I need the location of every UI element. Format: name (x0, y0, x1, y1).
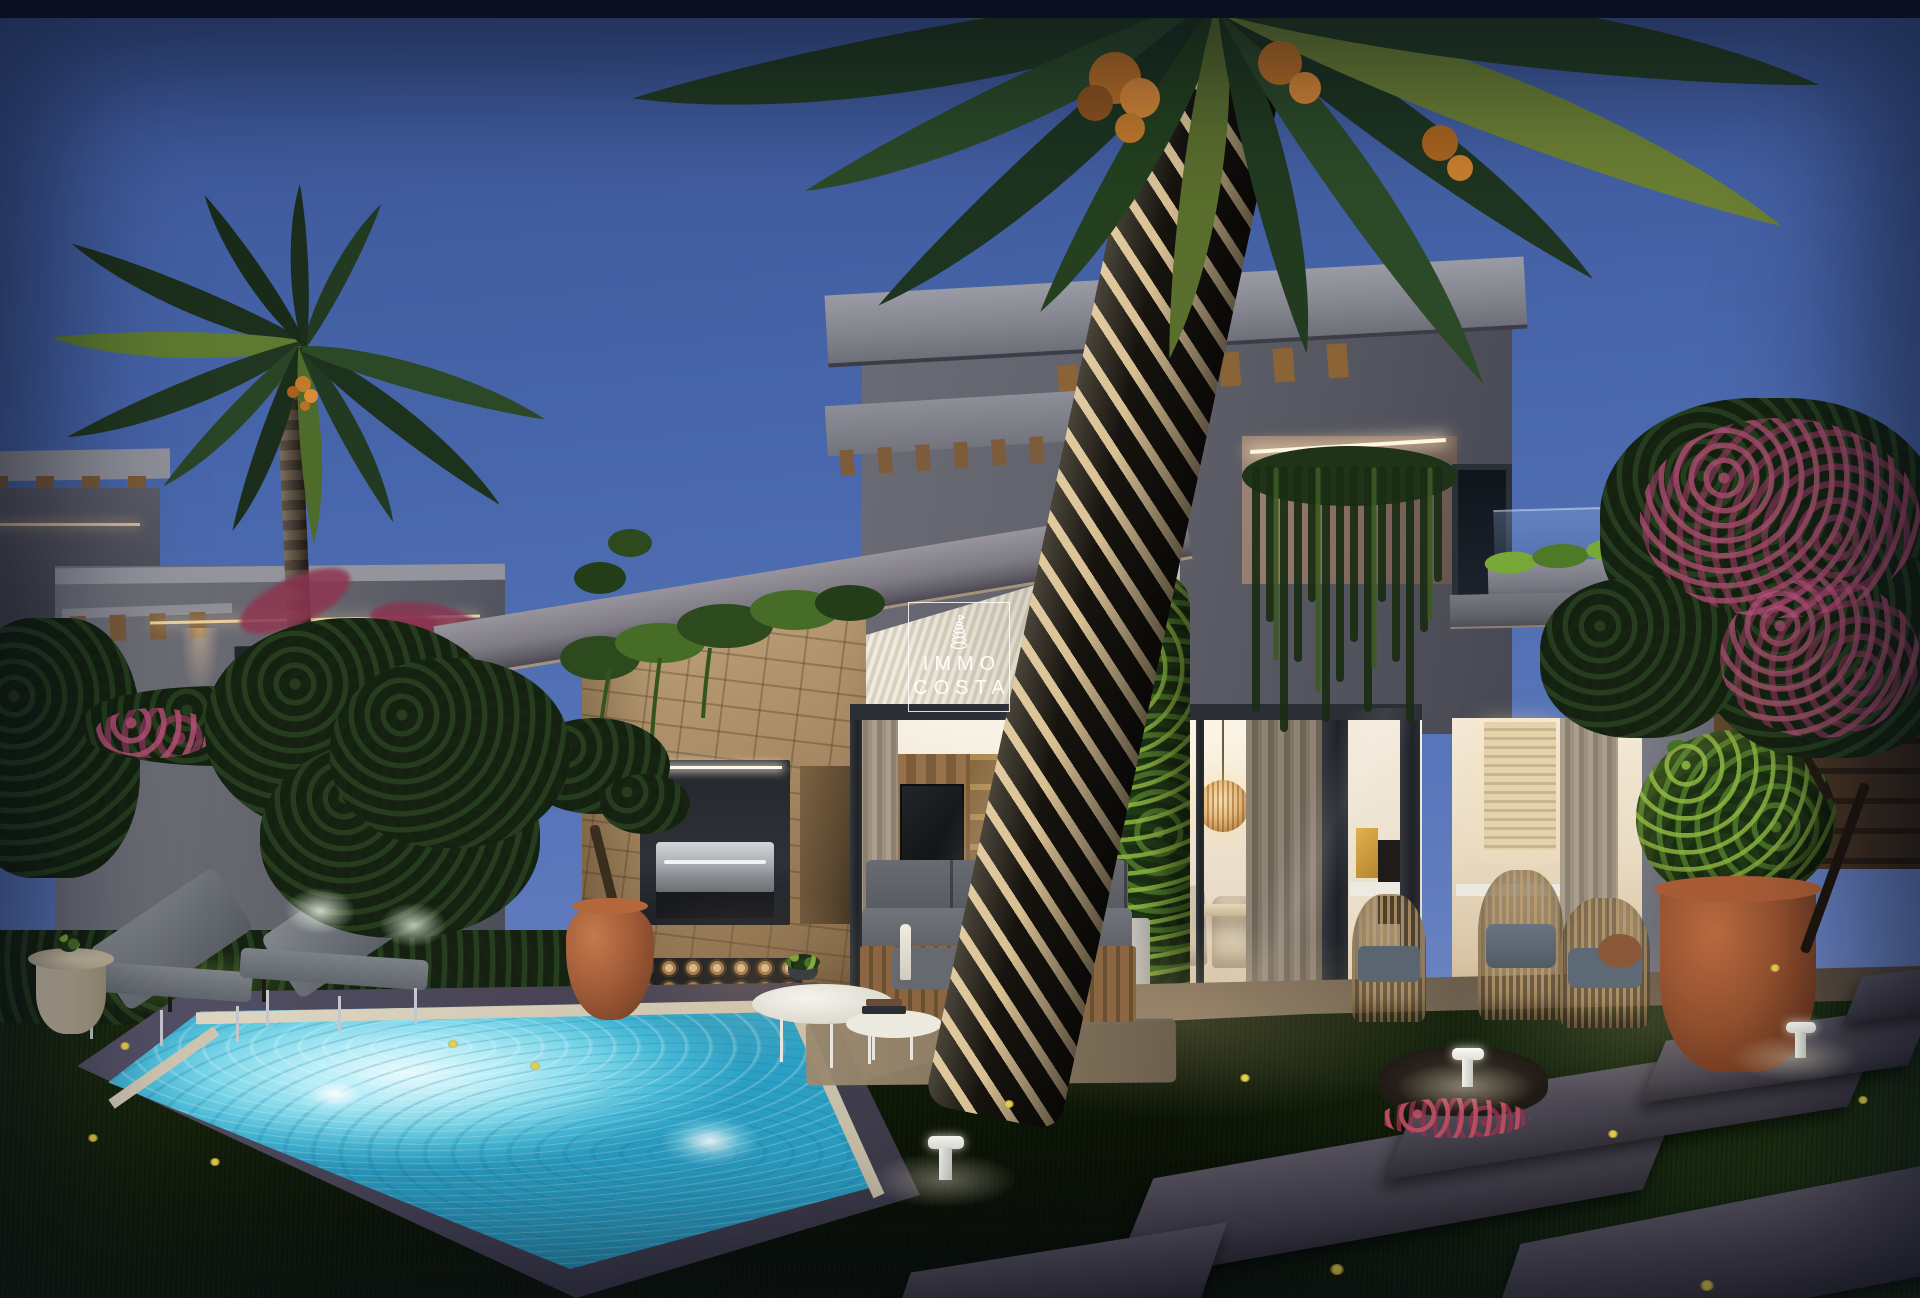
bollard-light-stem (1462, 1059, 1473, 1087)
table-leg (780, 1018, 783, 1062)
kitchen-blind (1484, 722, 1556, 850)
lounger-leg (266, 990, 269, 1026)
bbq-grill-handle (664, 860, 766, 864)
dandelion (1700, 1280, 1714, 1291)
lounger-leg (236, 1006, 239, 1042)
terracotta-urn-rim (572, 898, 648, 914)
table-leg (868, 1034, 871, 1064)
wicker-chair-cushion (1486, 924, 1556, 968)
dandelion (530, 1062, 540, 1070)
books (862, 1006, 906, 1014)
backlit-leaves (380, 903, 446, 947)
pool-underwater-light (290, 1071, 380, 1117)
dandelion (1004, 1100, 1014, 1108)
backlit-leaves (285, 888, 355, 934)
far-left-light-strip (0, 523, 140, 526)
tower-icon (945, 613, 973, 651)
table-leg (910, 1030, 913, 1060)
books (866, 999, 902, 1006)
table-leg (830, 1024, 833, 1068)
watermark-line1: IMMO (917, 653, 1001, 675)
dandelion (120, 1042, 130, 1050)
immo-costa-watermark: IMMO COSTA (908, 602, 1010, 712)
pool-underwater-light (660, 1116, 760, 1166)
terracotta-pot-rim (1654, 876, 1822, 902)
dandelion (1770, 964, 1780, 972)
small-tree-canopy (600, 774, 690, 834)
coffee-table-small (846, 1010, 942, 1038)
potted-plant-small (58, 934, 80, 952)
lounger-leg (414, 988, 417, 1024)
plant-bowl-leaves (786, 954, 820, 970)
dandelion (1858, 1096, 1868, 1104)
watermark-line2: COSTA (907, 677, 1010, 699)
pink-blossoms (1720, 578, 1920, 738)
dandelion (448, 1040, 458, 1048)
garden-tree-canopy (330, 658, 570, 848)
wicker-chair-cushion (1358, 946, 1420, 982)
dandelion (1330, 1264, 1344, 1275)
villa-dusk-render: IMMO COSTA (0, 18, 1920, 1298)
lounger-leg (338, 996, 341, 1032)
dandelion (1608, 1130, 1618, 1138)
dandelion (88, 1134, 98, 1142)
dandelion (210, 1158, 220, 1166)
dandelion (1240, 1074, 1250, 1082)
decor-bottle (900, 924, 911, 980)
bollard-light-stem (1795, 1032, 1806, 1058)
balcony-parapet (1242, 436, 1457, 584)
pink-flowers (95, 708, 215, 758)
bollard-light-stem (939, 1148, 952, 1180)
wicker-chair-pillow (1598, 934, 1642, 968)
lounger-leg (160, 1010, 163, 1046)
